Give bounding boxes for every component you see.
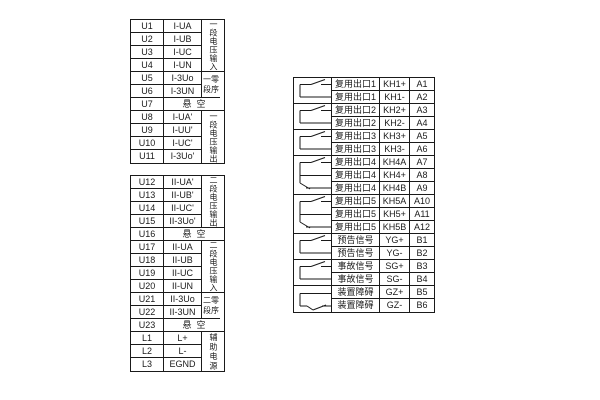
output-function-cell: 复用出口3 xyxy=(332,143,380,156)
signal-name-cell: I-UN xyxy=(164,59,202,72)
contact-terminal-cell: KH4A xyxy=(380,156,410,169)
output-function-cell: 复用出口1 xyxy=(332,91,380,104)
contact-terminal-cell: YG- xyxy=(380,247,410,260)
relay-no-contact-icon xyxy=(294,104,331,129)
terminal-number-cell: B4 xyxy=(410,273,434,286)
signal-name-cell: I-UU' xyxy=(164,124,202,137)
signal-name-cell: II-UB xyxy=(164,254,202,267)
signal-name-cell: L+ xyxy=(164,332,202,345)
terminal-number-cell: U4 xyxy=(131,59,164,72)
terminal-number-cell: L2 xyxy=(131,345,164,358)
relay-no-contact-icon xyxy=(294,234,331,259)
signal-name-cell: II-3Uo' xyxy=(164,215,202,228)
terminal-number-cell: A2 xyxy=(410,91,434,104)
terminal-number-cell: U17 xyxy=(131,241,164,254)
output-function-cell: 复用出口3 xyxy=(332,130,380,143)
relay-contact-symbol-cell xyxy=(294,195,332,234)
terminal-group-label: 二段电压输入 xyxy=(202,241,224,293)
terminal-number-cell: A11 xyxy=(410,208,434,221)
floating-terminal-cell: 悬空 xyxy=(164,98,224,111)
signal-name-cell: II-UB' xyxy=(164,189,202,202)
output-function-cell: 预告信号 xyxy=(332,234,380,247)
contact-terminal-cell: GZ+ xyxy=(380,286,410,299)
terminal-number-cell: B2 xyxy=(410,247,434,260)
signal-name-cell: I-3Uo xyxy=(164,72,202,85)
signal-name-cell: II-3UN xyxy=(164,306,202,319)
terminal-number-cell: L3 xyxy=(131,358,164,371)
output-function-cell: 装置障碍 xyxy=(332,286,380,299)
contact-terminal-cell: SG+ xyxy=(380,260,410,273)
signal-name-cell: II-UC xyxy=(164,267,202,280)
terminal-number-cell: U6 xyxy=(131,85,164,98)
terminal-wiring-diagram: U1I-UAU2I-UBU3I-UCU4I-UNU5I-3UoU6I-3UNU7… xyxy=(0,0,600,400)
terminal-table-u1-u11: U1I-UAU2I-UBU3I-UCU4I-UNU5I-3UoU6I-3UNU7… xyxy=(130,19,225,164)
contact-terminal-cell: KH3- xyxy=(380,143,410,156)
terminal-number-cell: U12 xyxy=(131,176,164,189)
contact-terminal-cell: KH2+ xyxy=(380,104,410,117)
terminal-table-u12-l3: U12II-UA'U13II-UB'U14II-UC'U15II-3Uo'U16… xyxy=(130,175,225,372)
output-function-cell: 复用出口5 xyxy=(332,195,380,208)
terminal-number-cell: A9 xyxy=(410,182,434,195)
signal-name-cell: II-UC' xyxy=(164,202,202,215)
terminal-number-cell: B3 xyxy=(410,260,434,273)
output-function-cell: 装置障碍 xyxy=(332,299,380,312)
terminal-group-label: 一段电压输出 xyxy=(202,111,224,163)
relay-contact-symbol-cell xyxy=(294,130,332,156)
terminal-number-cell: U9 xyxy=(131,124,164,137)
relay-contact-symbol-cell xyxy=(294,260,332,286)
output-function-cell: 事故信号 xyxy=(332,273,380,286)
terminal-number-cell: A12 xyxy=(410,221,434,234)
relay-contact-symbol-cell xyxy=(294,286,332,312)
relay-changeover-contact-icon xyxy=(294,195,331,233)
output-function-cell: 复用出口4 xyxy=(332,182,380,195)
floating-terminal-cell: 悬空 xyxy=(164,228,224,241)
terminal-number-cell: U7 xyxy=(131,98,164,111)
terminal-number-cell: U8 xyxy=(131,111,164,124)
terminal-number-cell: A8 xyxy=(410,169,434,182)
terminal-number-cell: U11 xyxy=(131,150,164,163)
signal-name-cell: L- xyxy=(164,345,202,358)
signal-name-cell: I-UC' xyxy=(164,137,202,150)
signal-name-cell: I-3UN xyxy=(164,85,202,98)
floating-terminal-cell: 悬空 xyxy=(164,319,224,332)
signal-name-cell: I-UB xyxy=(164,33,202,46)
signal-name-cell: II-UN xyxy=(164,280,202,293)
contact-terminal-cell: KH1- xyxy=(380,91,410,104)
relay-no-contact-icon xyxy=(294,78,331,103)
contact-terminal-cell: KH1+ xyxy=(380,78,410,91)
terminal-number-cell: B5 xyxy=(410,286,434,299)
terminal-group-label: 辅助电源 xyxy=(202,332,224,371)
terminal-number-cell: U20 xyxy=(131,280,164,293)
terminal-number-cell: U5 xyxy=(131,72,164,85)
terminal-number-cell: U22 xyxy=(131,306,164,319)
terminal-number-cell: U15 xyxy=(131,215,164,228)
relay-contact-symbol-cell xyxy=(294,156,332,195)
terminal-number-cell: B6 xyxy=(410,299,434,312)
terminal-number-cell: L1 xyxy=(131,332,164,345)
terminal-number-cell: A6 xyxy=(410,143,434,156)
contact-terminal-cell: YG+ xyxy=(380,234,410,247)
terminal-number-cell: B1 xyxy=(410,234,434,247)
terminal-number-cell: A1 xyxy=(410,78,434,91)
contact-terminal-cell: SG- xyxy=(380,273,410,286)
terminal-number-cell: U3 xyxy=(131,46,164,59)
contact-terminal-cell: KH5+ xyxy=(380,208,410,221)
terminal-number-cell: U21 xyxy=(131,293,164,306)
contact-terminal-cell: KH5A xyxy=(380,195,410,208)
terminal-number-cell: A4 xyxy=(410,117,434,130)
terminal-number-cell: A7 xyxy=(410,156,434,169)
signal-name-cell: II-UA xyxy=(164,241,202,254)
output-function-cell: 事故信号 xyxy=(332,260,380,273)
relay-no-contact-icon xyxy=(294,260,331,285)
contact-terminal-cell: KH5B xyxy=(380,221,410,234)
signal-name-cell: EGND xyxy=(164,358,202,371)
contact-terminal-cell: GZ- xyxy=(380,299,410,312)
terminal-number-cell: U2 xyxy=(131,33,164,46)
terminal-number-cell: A10 xyxy=(410,195,434,208)
relay-contact-symbol-cell xyxy=(294,78,332,104)
contact-terminal-cell: KH4+ xyxy=(380,169,410,182)
terminal-number-cell: U14 xyxy=(131,202,164,215)
terminal-group-label: 二零段序 xyxy=(202,293,220,319)
output-contact-terminal-table: 复用出口1KH1+A1复用出口1KH1-A2复用出口2KH2+A3复用出口2KH… xyxy=(293,77,435,313)
terminal-number-cell: U16 xyxy=(131,228,164,241)
terminal-number-cell: U1 xyxy=(131,20,164,33)
terminal-number-cell: U23 xyxy=(131,319,164,332)
terminal-number-cell: U10 xyxy=(131,137,164,150)
output-function-cell: 复用出口1 xyxy=(332,78,380,91)
terminal-group-label: 一段电压输入 xyxy=(202,20,224,72)
signal-name-cell: I-3Uo' xyxy=(164,150,202,163)
signal-name-cell: II-3Uo xyxy=(164,293,202,306)
terminal-number-cell: U13 xyxy=(131,189,164,202)
output-function-cell: 预告信号 xyxy=(332,247,380,260)
signal-name-cell: I-UA' xyxy=(164,111,202,124)
output-function-cell: 复用出口2 xyxy=(332,104,380,117)
terminal-group-label: 一零段序 xyxy=(202,72,220,98)
signal-name-cell: II-UA' xyxy=(164,176,202,189)
signal-name-cell: I-UA xyxy=(164,20,202,33)
signal-name-cell: I-UC xyxy=(164,46,202,59)
contact-terminal-cell: KH3+ xyxy=(380,130,410,143)
contact-terminal-cell: KH2- xyxy=(380,117,410,130)
output-function-cell: 复用出口5 xyxy=(332,208,380,221)
terminal-number-cell: U19 xyxy=(131,267,164,280)
relay-no-contact-icon xyxy=(294,130,331,155)
terminal-number-cell: U18 xyxy=(131,254,164,267)
terminal-number-cell: A5 xyxy=(410,130,434,143)
relay-contact-symbol-cell xyxy=(294,234,332,260)
relay-nc-contact-icon xyxy=(294,287,331,312)
output-function-cell: 复用出口4 xyxy=(332,156,380,169)
output-function-cell: 复用出口4 xyxy=(332,169,380,182)
output-function-cell: 复用出口2 xyxy=(332,117,380,130)
output-function-cell: 复用出口5 xyxy=(332,221,380,234)
contact-terminal-cell: KH4B xyxy=(380,182,410,195)
relay-changeover-contact-icon xyxy=(294,156,331,194)
terminal-number-cell: A3 xyxy=(410,104,434,117)
relay-contact-symbol-cell xyxy=(294,104,332,130)
terminal-group-label: 二段电压输出 xyxy=(202,176,224,228)
